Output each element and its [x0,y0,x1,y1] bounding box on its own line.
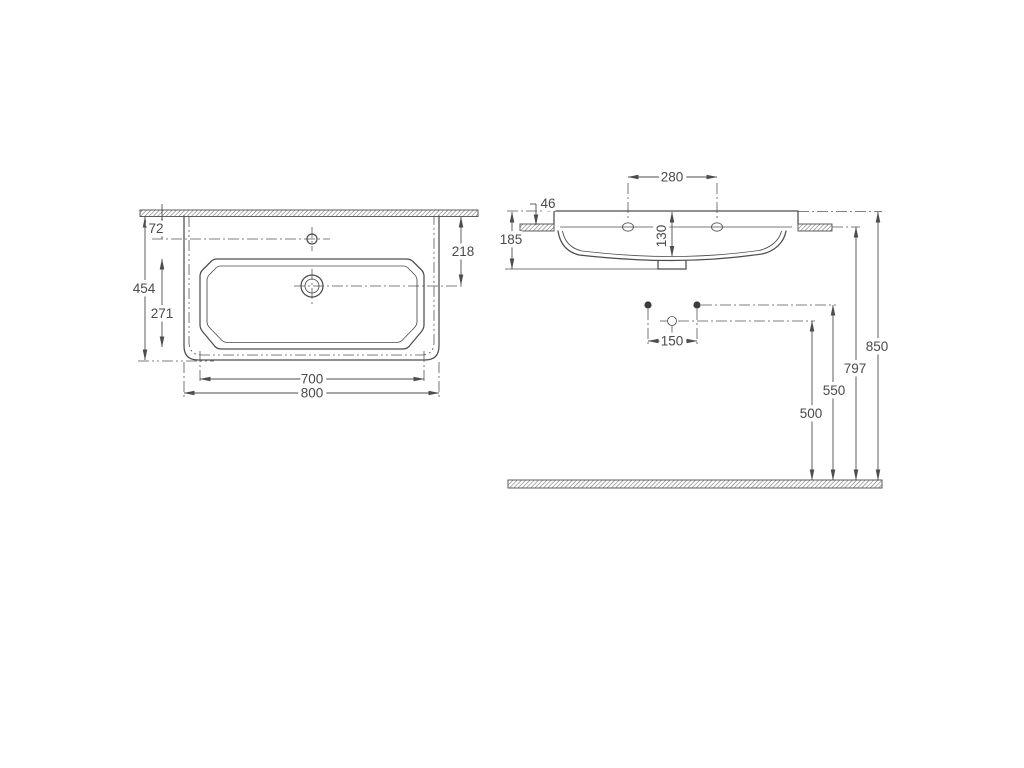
dim-hole-spacing: 280 [628,170,717,185]
plan-view: 454 72 271 218 700 800 [133,204,478,401]
dim-total-depth: 454 [133,217,156,360]
dim-bowl-inner-depth: 130 [654,212,672,257]
dim-label-bolt-height: 550 [823,383,846,398]
side-wall-section-left [520,224,554,231]
dim-label-total-depth: 454 [133,281,156,296]
side-view: 280 46 185 130 150 [500,170,889,489]
dim-faucet-offset: 72 [148,204,163,239]
dim-drain-offset: 218 [452,217,475,285]
bolt-left [644,301,651,308]
washbasin-technical-drawing: 454 72 271 218 700 800 [0,0,1024,768]
dim-label-fixing-hole-height: 797 [844,361,867,376]
plan-basin-outer-rim [184,216,439,360]
plan-wall-section [140,210,478,217]
dim-bowl-depth: 271 [151,259,174,347]
dim-basin-height: 185 [500,212,523,269]
dim-fixing-hole-height: 797 [844,227,867,480]
dim-label-drain-height: 500 [800,406,823,421]
bolt-right [693,301,700,308]
dim-label-bowl-inner-depth: 130 [654,225,669,248]
plan-basin-hidden-edge [189,216,434,355]
dim-rim-height: 850 [866,212,889,480]
dim-label-rim-height: 850 [866,339,889,354]
dim-drain-height: 500 [800,321,823,480]
dim-bolt-spacing: 150 [648,334,697,349]
dim-label-bowl-width: 700 [301,372,324,387]
drain-outlet [668,317,677,326]
side-wall-section-right [798,224,832,231]
dim-label-rim-to-holes: 46 [540,196,555,211]
dim-rim-to-holes: 46 [530,196,556,225]
dim-bolt-height: 550 [823,305,846,480]
dim-label-bowl-depth: 271 [151,306,174,321]
dim-label-hole-spacing: 280 [661,170,684,185]
dim-label-bolt-spacing: 150 [661,334,684,349]
dim-label-drain-offset: 218 [452,244,475,259]
floor-section [508,480,882,488]
dim-bowl-width: 700 [200,351,424,387]
drawing-canvas: 454 72 271 218 700 800 [0,0,1024,768]
dim-label-faucet-offset: 72 [148,221,163,236]
side-drain-stub [658,261,686,270]
dim-label-basin-height: 185 [500,232,523,247]
dim-label-total-width: 800 [301,386,324,401]
